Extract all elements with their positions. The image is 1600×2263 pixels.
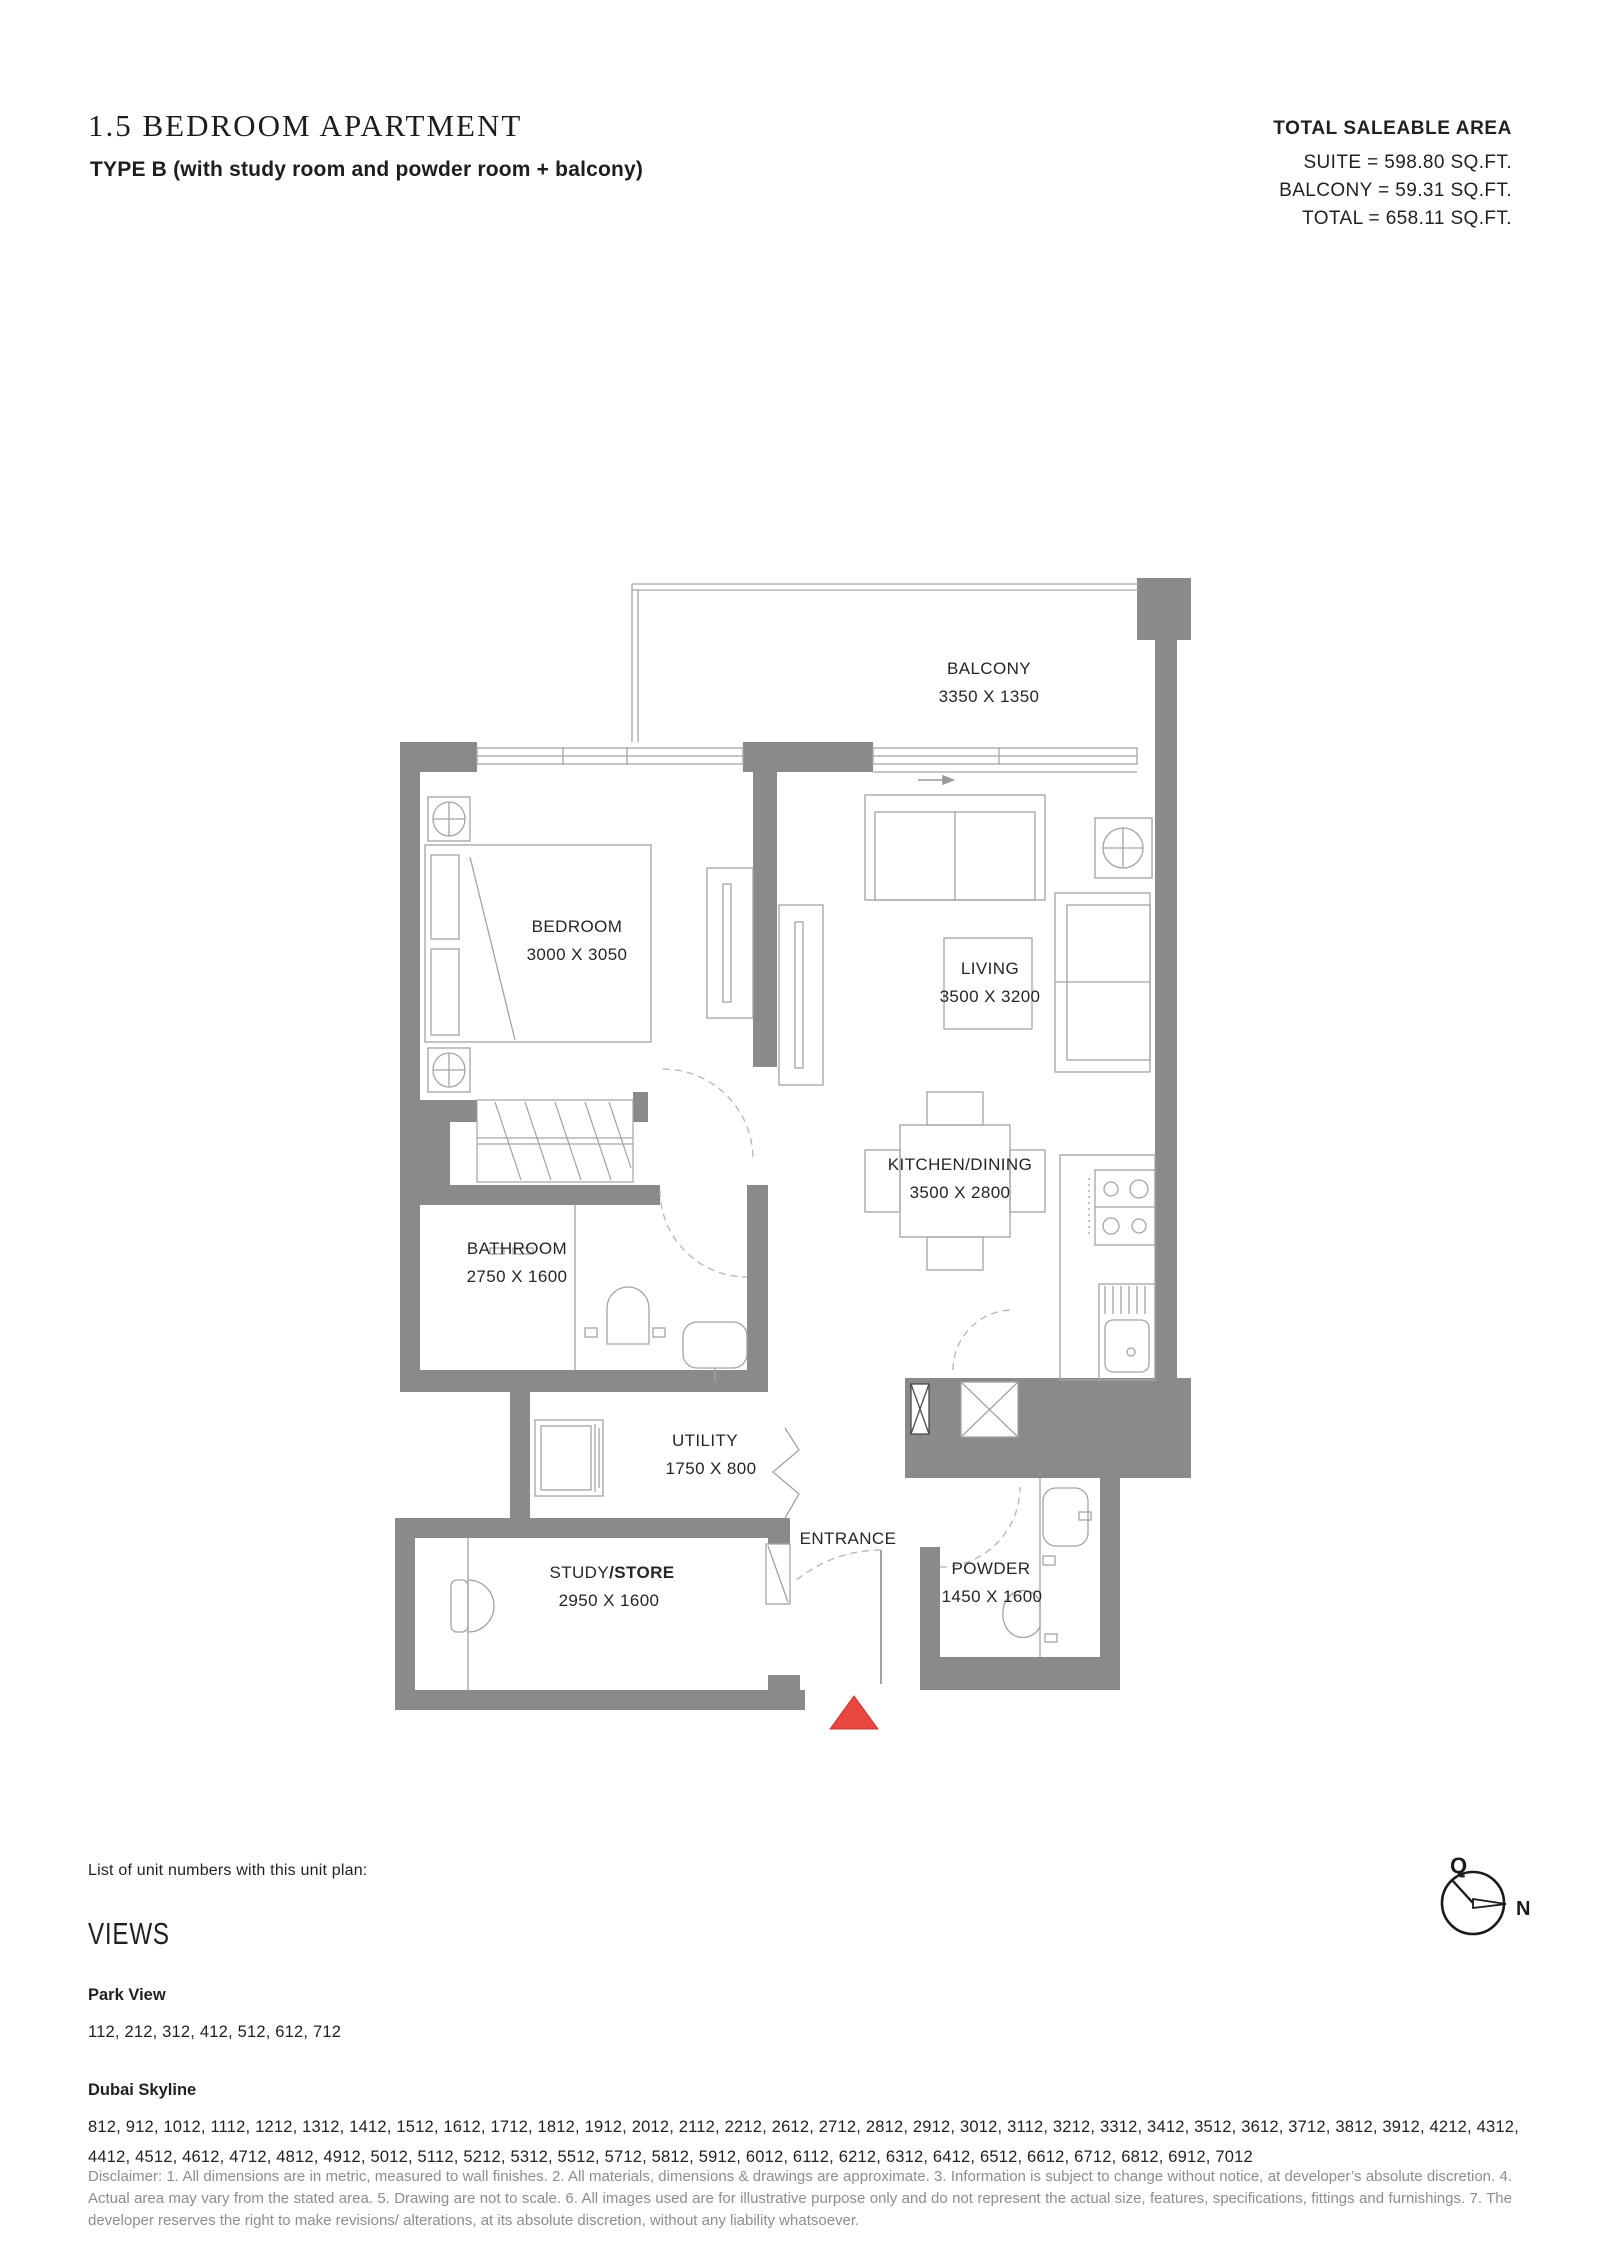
powder-dims: 1450 X 1600 — [942, 1587, 1043, 1606]
elevator-shaft-icon — [961, 1382, 1018, 1437]
bathroom-label: BATHROOM — [467, 1239, 567, 1258]
floor-plan-page: 1.5 BEDROOM APARTMENT TYPE B (with study… — [0, 0, 1600, 2263]
kitchen-door-arc — [953, 1310, 1013, 1370]
powder-label: POWDER — [952, 1559, 1031, 1578]
balcony-sliding-door — [873, 748, 1137, 772]
saleable-area-block: TOTAL SALEABLE AREA SUITE = 598.80 SQ.FT… — [1273, 118, 1512, 233]
nightstand-top — [428, 797, 470, 841]
powder-sink-icon — [1043, 1488, 1088, 1546]
kitchen-label: KITCHEN/DINING — [888, 1155, 1032, 1174]
page-subtitle: TYPE B (with study room and powder room … — [90, 158, 643, 182]
powder-door-arc — [940, 1487, 1020, 1567]
compass-q-label: Q — [1450, 1853, 1467, 1878]
disclaimer-text: Disclaimer: 1. All dimensions are in met… — [88, 2166, 1512, 2232]
views-heading: VIEWS — [88, 1916, 1205, 1952]
sofa — [865, 795, 1045, 900]
unit-numbers-section: List of unit numbers with this unit plan… — [88, 1862, 1520, 2172]
bathroom-dims: 2750 X 1600 — [467, 1267, 568, 1286]
study-door — [766, 1544, 790, 1604]
floor-plan-drawing: BALCONY 3350 X 1350 BEDROOM 3000 X 3050 … — [395, 572, 1205, 1747]
door-swing-arrow-icon — [918, 776, 953, 784]
living-tv-unit — [779, 905, 823, 1085]
study-label: STUDY/STORE — [549, 1563, 674, 1582]
balcony-label: BALCONY — [947, 659, 1031, 678]
utility-dims: 1750 X 800 — [666, 1459, 757, 1478]
stove-icon — [1089, 1170, 1155, 1245]
study-desk — [451, 1538, 494, 1690]
study-label-regular: STUDY — [549, 1563, 609, 1582]
unit-list-intro: List of unit numbers with this unit plan… — [88, 1862, 1520, 1880]
kitchen-sink-icon — [1099, 1284, 1155, 1380]
side-table — [1095, 818, 1152, 878]
bathroom-fixtures — [490, 1205, 747, 1382]
toilet-icon — [607, 1287, 649, 1344]
utility-label: UTILITY — [672, 1431, 738, 1450]
dining-table-set — [865, 1092, 1045, 1270]
kitchen-dims: 3500 X 2800 — [910, 1183, 1011, 1202]
compass: Q N — [1420, 1835, 1560, 1960]
bedroom-label: BEDROOM — [532, 917, 623, 936]
utility-folding-door — [773, 1428, 799, 1518]
living-dims: 3500 X 3200 — [940, 987, 1041, 1006]
balcony-area-line: BALCONY = 59.31 SQ.FT. — [1273, 177, 1512, 205]
study-dims: 2950 X 1600 — [559, 1591, 660, 1610]
balcony-dims: 3350 X 1350 — [939, 687, 1040, 706]
study-label-bold: /STORE — [609, 1563, 674, 1582]
lounge-chair — [1055, 893, 1150, 1072]
bathroom-door-arc — [660, 1190, 747, 1277]
kitchen-counter — [1060, 1155, 1155, 1380]
dubai-skyline-numbers: 812, 912, 1012, 1112, 1212, 1312, 1412, … — [88, 2112, 1520, 2172]
duct-shaft-icon — [911, 1384, 929, 1434]
bathroom-sink-icon — [683, 1322, 747, 1368]
suite-area-line: SUITE = 598.80 SQ.FT. — [1273, 149, 1512, 177]
wardrobe-closet — [477, 1100, 633, 1182]
compass-n-label: N — [1516, 1898, 1530, 1920]
page-title: 1.5 BEDROOM APARTMENT — [88, 108, 522, 144]
park-view-numbers: 112, 212, 312, 412, 512, 612, 712 — [88, 2017, 1520, 2047]
living-label: LIVING — [961, 959, 1019, 978]
dubai-skyline-label: Dubai Skyline — [88, 2081, 1520, 2100]
bed — [425, 845, 651, 1042]
coffee-table — [944, 938, 1032, 1029]
total-area-line: TOTAL = 658.11 SQ.FT. — [1273, 205, 1512, 233]
compass-icon: Q N — [1420, 1835, 1560, 1955]
entrance-marker-icon — [830, 1696, 878, 1729]
floor-plan-svg: BALCONY 3350 X 1350 BEDROOM 3000 X 3050 … — [395, 572, 1205, 1747]
bedroom-tv-unit — [707, 868, 753, 1018]
bedroom-dims: 3000 X 3050 — [527, 945, 628, 964]
saleable-area-heading: TOTAL SALEABLE AREA — [1273, 118, 1512, 140]
nightstand-bottom — [428, 1048, 470, 1092]
entrance-door-arc — [793, 1550, 881, 1583]
park-view-label: Park View — [88, 1986, 1520, 2005]
door-swing-arcs — [660, 1069, 1020, 1583]
balcony-railing — [632, 584, 1139, 742]
bedroom-window — [477, 748, 743, 764]
entrance-label: ENTRANCE — [800, 1529, 897, 1548]
washer-icon — [535, 1420, 603, 1496]
bedroom-door-arc — [663, 1069, 753, 1159]
